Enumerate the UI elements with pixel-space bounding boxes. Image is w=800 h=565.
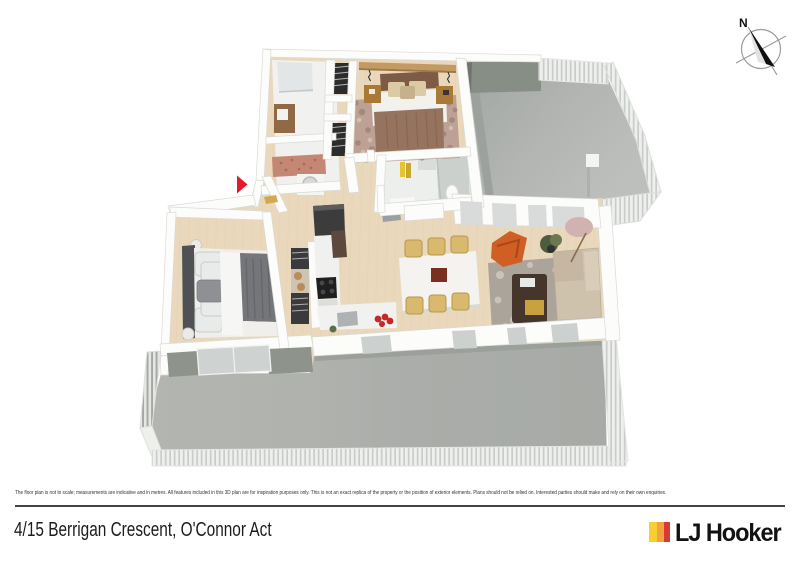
svg-text:N: N bbox=[739, 16, 748, 30]
